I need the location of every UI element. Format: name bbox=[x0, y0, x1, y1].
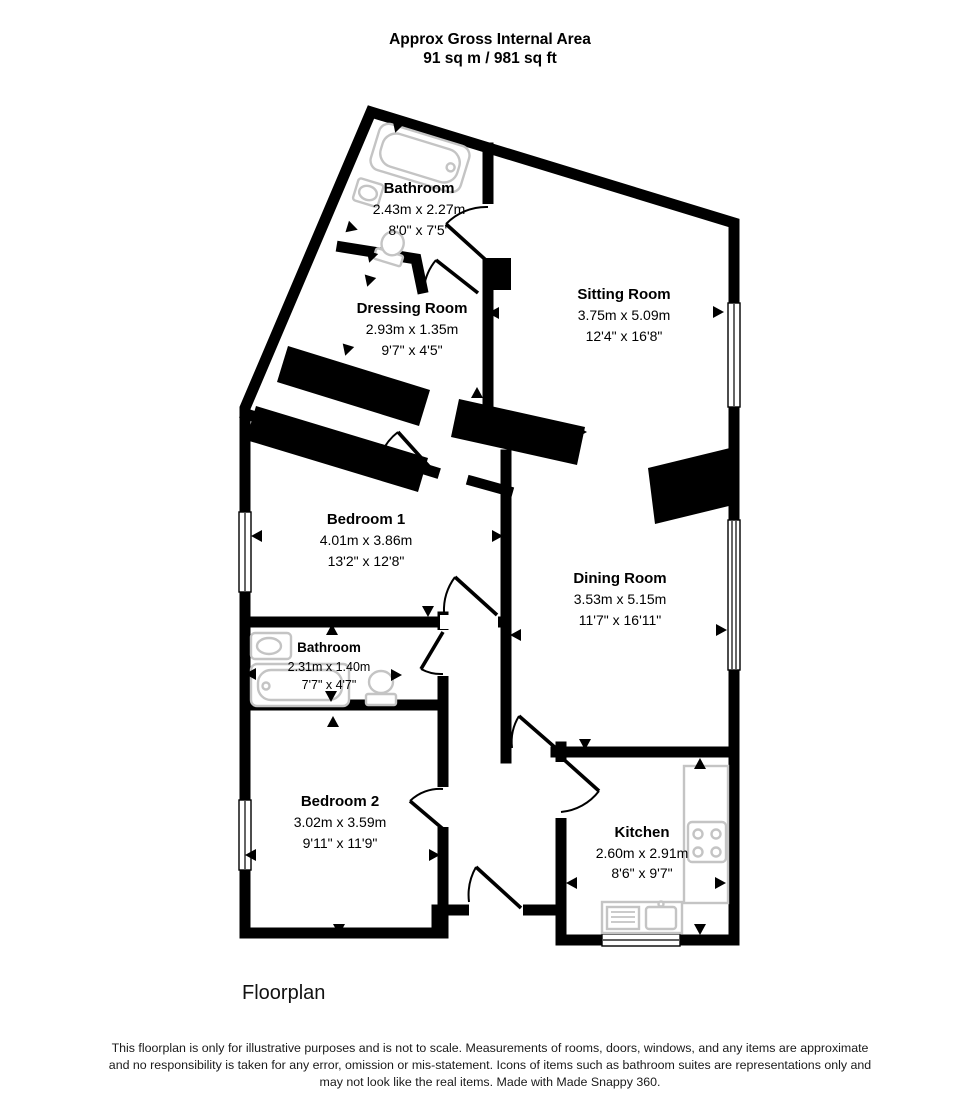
arrow-marker-icon bbox=[422, 606, 434, 617]
arrow-marker-icon bbox=[327, 716, 339, 727]
room-dim-metric: 2.31m x 1.40m bbox=[288, 660, 371, 674]
room-name: Bathroom bbox=[297, 640, 361, 655]
arrow-marker-icon bbox=[566, 877, 577, 889]
room-dim-imperial: 8'6" x 9'7" bbox=[611, 865, 672, 881]
floorplan-caption: Floorplan bbox=[242, 982, 325, 1004]
hob-icon bbox=[688, 822, 726, 862]
window-kitchen bbox=[602, 934, 680, 946]
sink-icon bbox=[251, 633, 291, 659]
room-dim-metric: 3.02m x 3.59m bbox=[294, 814, 387, 830]
room-dim-imperial: 9'11" x 11'9" bbox=[303, 835, 378, 851]
wardrobe-block bbox=[451, 399, 585, 465]
arrow-marker-icon bbox=[340, 343, 355, 357]
wardrobe-block bbox=[648, 448, 737, 524]
floorplan-svg: Approx Gross Internal Area 91 sq m / 981… bbox=[0, 0, 980, 1108]
room-label-bedroom-2: Bedroom 2 3.02m x 3.59m 9'11" x 11'9" bbox=[294, 793, 387, 851]
room-name: Dressing Room bbox=[357, 300, 468, 317]
door-swing bbox=[469, 867, 521, 908]
footer: Floorplan This floorplan is only for ill… bbox=[109, 982, 871, 1089]
door-swing bbox=[512, 716, 558, 750]
disclaimer-line: may not look like the real items. Made w… bbox=[320, 1075, 661, 1089]
room-dim-metric: 3.75m x 5.09m bbox=[578, 307, 671, 323]
door-swing bbox=[424, 260, 478, 293]
room-dim-imperial: 7'7" x 4'7" bbox=[302, 678, 357, 692]
arrow-marker-icon bbox=[471, 387, 483, 398]
arrow-marker-icon bbox=[713, 306, 724, 318]
room-name: Bedroom 2 bbox=[301, 793, 379, 810]
window-dining bbox=[728, 520, 740, 670]
arrow-marker-icon bbox=[362, 274, 377, 288]
room-name: Kitchen bbox=[614, 824, 669, 841]
room-dim-imperial: 11'7" x 16'11" bbox=[579, 612, 662, 628]
arrow-marker-icon bbox=[391, 669, 402, 681]
arrow-marker-icon bbox=[716, 624, 727, 636]
room-dim-imperial: 8'0" x 7'5" bbox=[388, 222, 449, 238]
room-name: Bathroom bbox=[384, 180, 455, 197]
room-dim-metric: 4.01m x 3.86m bbox=[320, 532, 413, 548]
room-dim-metric: 3.53m x 5.15m bbox=[574, 591, 667, 607]
room-dim-imperial: 13'2" x 12'8" bbox=[328, 553, 405, 569]
window-bedroom2 bbox=[239, 800, 251, 870]
arrow-marker-icon bbox=[510, 629, 521, 641]
room-dim-imperial: 9'7" x 4'5" bbox=[381, 342, 442, 358]
arrow-marker-icon bbox=[251, 530, 262, 542]
room-dim-imperial: 12'4" x 16'8" bbox=[586, 328, 663, 344]
room-dim-metric: 2.60m x 2.91m bbox=[596, 845, 689, 861]
window-sitting bbox=[728, 303, 740, 407]
wardrobe-block bbox=[277, 346, 430, 426]
window-bedroom1 bbox=[239, 512, 251, 592]
arrow-marker-icon bbox=[694, 758, 706, 769]
room-label-dining-room: Dining Room 3.53m x 5.15m 11'7" x 16'11" bbox=[573, 570, 666, 628]
disclaimer-line: This floorplan is only for illustrative … bbox=[112, 1041, 869, 1055]
arrow-marker-icon bbox=[345, 221, 359, 236]
room-label-dressing-room: Dressing Room 2.93m x 1.35m 9'7" x 4'5" bbox=[357, 300, 468, 358]
page-title: Approx Gross Internal Area bbox=[389, 31, 591, 48]
header: Approx Gross Internal Area 91 sq m / 981… bbox=[389, 31, 591, 67]
room-dim-metric: 2.43m x 2.27m bbox=[373, 201, 466, 217]
floorplan-page: Approx Gross Internal Area 91 sq m / 981… bbox=[0, 0, 980, 1108]
door-swing bbox=[444, 577, 497, 615]
room-label-kitchen: Kitchen 2.60m x 2.91m 8'6" x 9'7" bbox=[596, 824, 689, 881]
room-name: Dining Room bbox=[573, 570, 666, 587]
room-label-bedroom-1: Bedroom 1 4.01m x 3.86m 13'2" x 12'8" bbox=[320, 511, 413, 569]
room-label-sitting-room: Sitting Room 3.75m x 5.09m 12'4" x 16'8" bbox=[577, 286, 670, 344]
disclaimer-line: and no responsibility is taken for any e… bbox=[109, 1058, 871, 1072]
page-subtitle: 91 sq m / 981 sq ft bbox=[423, 50, 557, 67]
room-name: Bedroom 1 bbox=[327, 511, 405, 528]
arrow-marker-icon bbox=[694, 924, 706, 935]
room-dim-metric: 2.93m x 1.35m bbox=[366, 321, 459, 337]
kitchen-sink-icon bbox=[602, 902, 682, 934]
room-name: Sitting Room bbox=[577, 286, 670, 303]
